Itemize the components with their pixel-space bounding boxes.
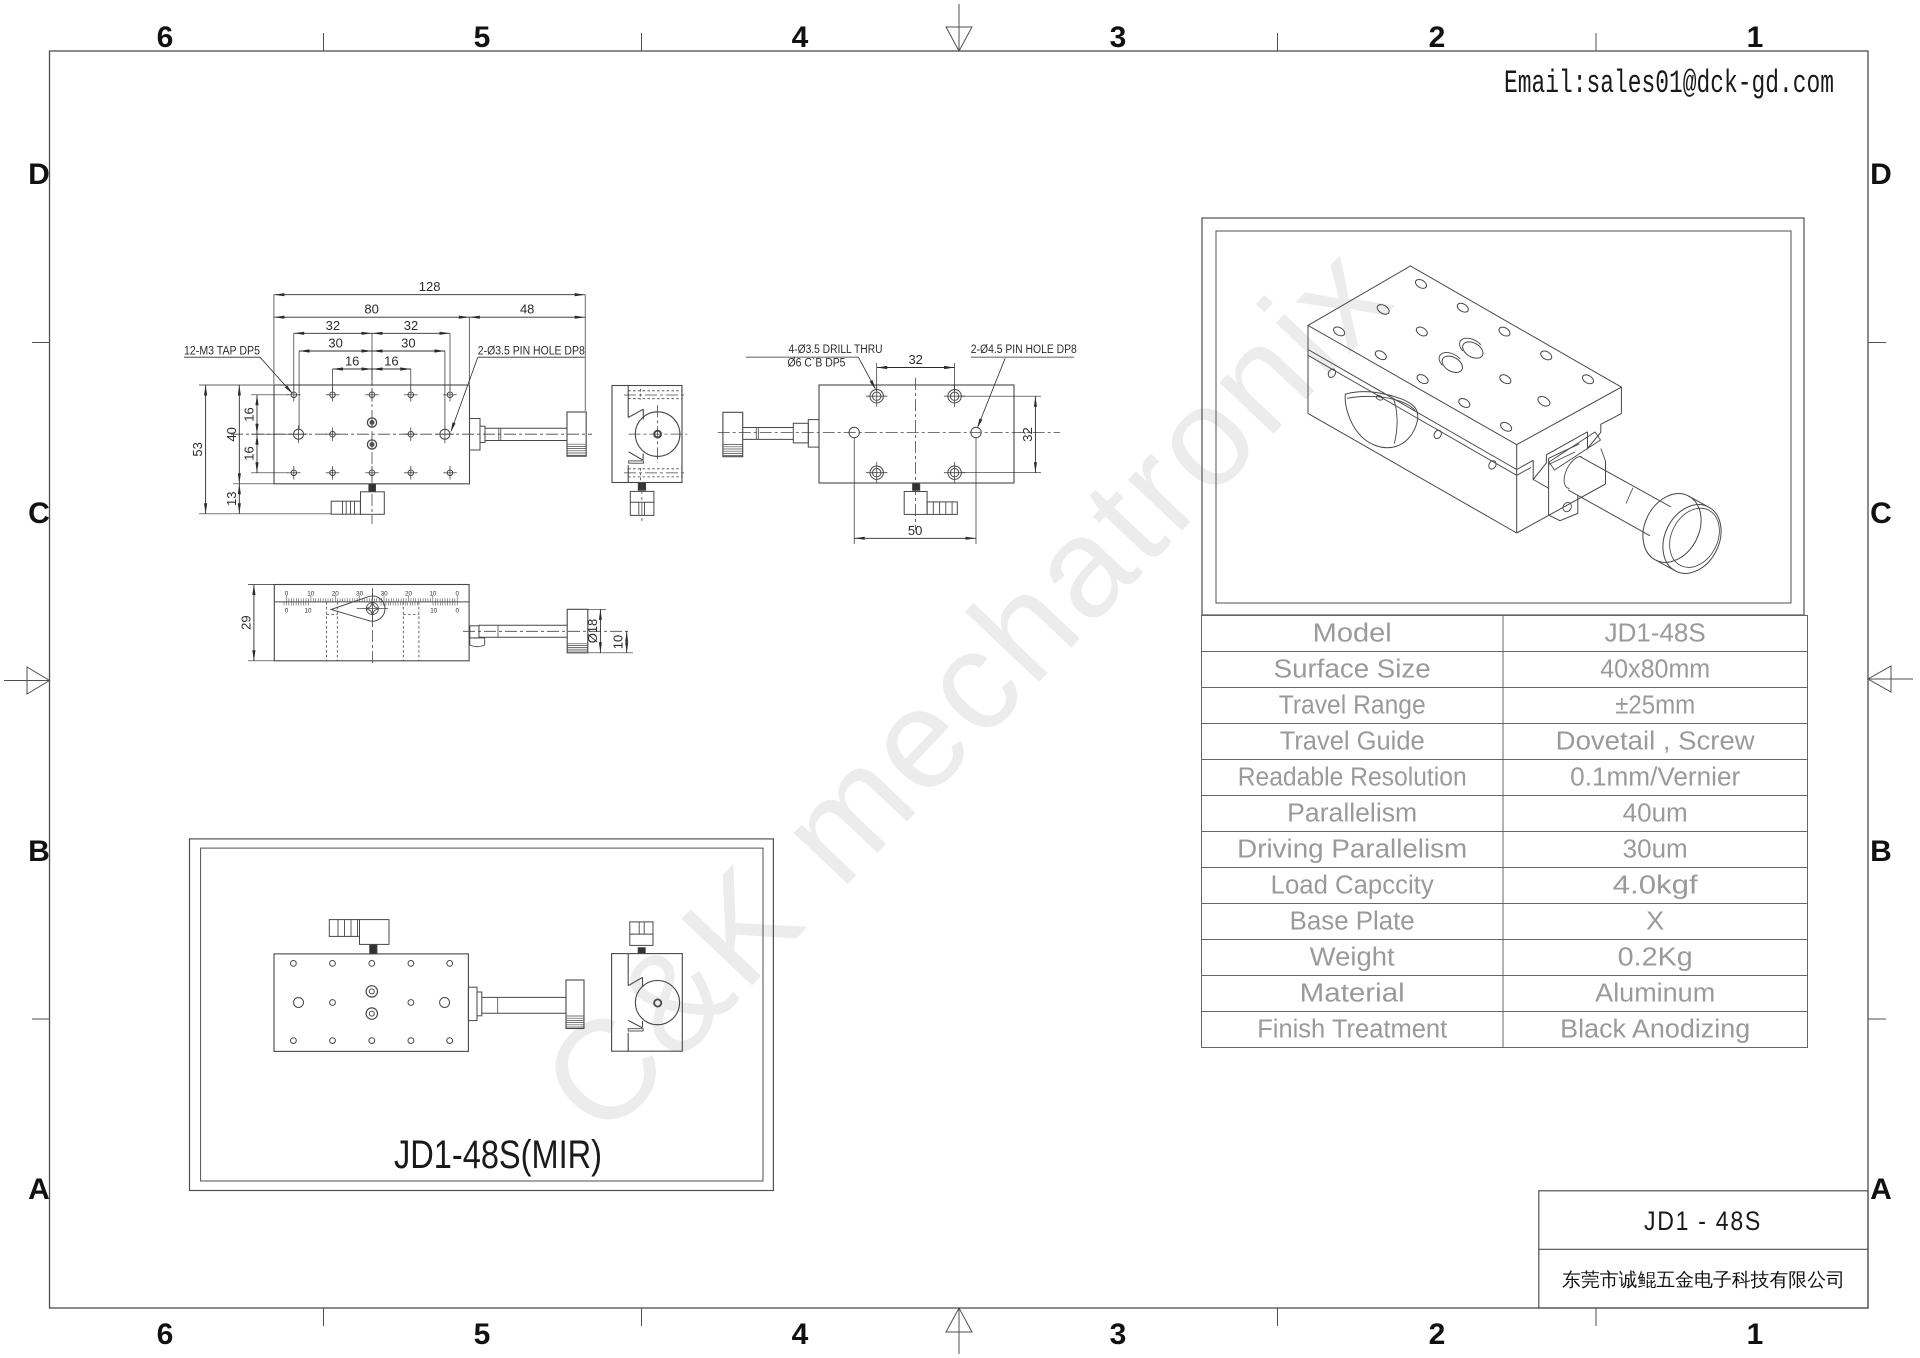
svg-text:Load Capccity: Load Capccity — [1271, 872, 1434, 900]
svg-text:29: 29 — [238, 615, 253, 629]
svg-text:12-M3 TAP DP5: 12-M3 TAP DP5 — [184, 346, 260, 358]
svg-text:3: 3 — [1110, 1318, 1127, 1351]
svg-text:50: 50 — [908, 523, 922, 538]
svg-text:4-Ø3.5 DRILL THRU: 4-Ø3.5 DRILL THRU — [789, 344, 883, 356]
svg-text:20: 20 — [405, 591, 413, 598]
svg-text:0.2Kg: 0.2Kg — [1618, 944, 1693, 972]
svg-text:0.1mm/Vernier: 0.1mm/Vernier — [1570, 764, 1741, 792]
svg-text:B: B — [28, 835, 50, 868]
svg-text:13: 13 — [224, 492, 239, 506]
svg-text:Ø6 C`B DP5: Ø6 C`B DP5 — [788, 358, 846, 370]
svg-text:2: 2 — [1429, 1318, 1446, 1351]
svg-text:32: 32 — [326, 318, 340, 333]
svg-text:32: 32 — [404, 318, 418, 333]
svg-text:4.0kgf: 4.0kgf — [1613, 872, 1699, 900]
svg-text:X: X — [1646, 908, 1664, 936]
svg-text:Base Plate: Base Plate — [1290, 908, 1415, 936]
svg-text:32: 32 — [1020, 427, 1035, 441]
svg-text:Travel Range: Travel Range — [1279, 692, 1426, 720]
svg-text:6: 6 — [157, 1318, 174, 1351]
svg-text:JD1-48S: JD1-48S — [1605, 620, 1706, 648]
svg-text:A: A — [28, 1173, 50, 1206]
svg-text:C: C — [28, 497, 50, 530]
svg-text:10: 10 — [611, 635, 626, 649]
svg-text:10: 10 — [307, 591, 315, 598]
svg-text:16: 16 — [345, 354, 359, 369]
svg-text:4: 4 — [792, 1318, 809, 1351]
svg-text:32: 32 — [908, 352, 922, 367]
svg-text:40um: 40um — [1623, 800, 1688, 828]
svg-text:Email:sales01@dck-gd.com: Email:sales01@dck-gd.com — [1504, 65, 1834, 102]
svg-text:53: 53 — [190, 442, 205, 456]
svg-text:16: 16 — [384, 354, 398, 369]
svg-text:Finish Treatment: Finish Treatment — [1257, 1016, 1447, 1044]
svg-text:1: 1 — [1747, 1318, 1764, 1351]
svg-text:0: 0 — [455, 591, 459, 598]
svg-text:Driving Parallelism: Driving Parallelism — [1237, 836, 1467, 864]
svg-text:2: 2 — [1429, 21, 1446, 54]
svg-text:D: D — [28, 158, 50, 191]
svg-text:2-Ø4.5 PIN HOLE DP8: 2-Ø4.5 PIN HOLE DP8 — [971, 344, 1077, 356]
svg-text:Dovetail , Screw: Dovetail , Screw — [1556, 728, 1756, 756]
svg-text:JD1 - 48S: JD1 - 48S — [1644, 1206, 1762, 1236]
svg-text:Model: Model — [1313, 620, 1392, 648]
svg-text:6: 6 — [157, 21, 174, 54]
svg-text:4: 4 — [792, 21, 809, 54]
svg-text:10: 10 — [304, 608, 312, 615]
svg-text:16: 16 — [242, 446, 257, 460]
svg-text:D: D — [1870, 158, 1892, 191]
svg-text:5: 5 — [474, 21, 491, 54]
svg-text:30: 30 — [328, 336, 342, 351]
svg-text:40: 40 — [224, 427, 239, 441]
svg-text:Aluminum: Aluminum — [1595, 980, 1715, 1008]
svg-text:30: 30 — [356, 591, 364, 598]
svg-text:Travel Guide: Travel Guide — [1280, 728, 1425, 756]
svg-text:A: A — [1870, 1173, 1892, 1206]
svg-text:128: 128 — [419, 279, 441, 294]
svg-text:Surface Size: Surface Size — [1274, 656, 1431, 684]
svg-text:0: 0 — [285, 591, 289, 598]
svg-text:30: 30 — [401, 336, 415, 351]
svg-text:10: 10 — [429, 591, 437, 598]
svg-text:40x80mm: 40x80mm — [1600, 656, 1710, 684]
svg-text:30um: 30um — [1623, 836, 1688, 864]
svg-text:Black Anodizing: Black Anodizing — [1560, 1016, 1750, 1044]
svg-text:B: B — [1870, 835, 1892, 868]
svg-text:10: 10 — [430, 608, 438, 615]
svg-text:1: 1 — [1747, 21, 1764, 54]
svg-text:0: 0 — [285, 608, 289, 615]
svg-text:Readable Resolution: Readable Resolution — [1238, 764, 1467, 792]
svg-text:80: 80 — [364, 302, 378, 317]
svg-text:±25mm: ±25mm — [1615, 692, 1695, 720]
svg-text:30: 30 — [381, 591, 389, 598]
svg-text:Parallelism: Parallelism — [1287, 800, 1417, 828]
svg-text:16: 16 — [242, 407, 257, 421]
svg-text:C: C — [1870, 497, 1892, 530]
svg-text:Ø18: Ø18 — [585, 619, 600, 644]
svg-text:Material: Material — [1300, 980, 1405, 1008]
svg-text:Weight: Weight — [1310, 944, 1395, 972]
svg-text:3: 3 — [1110, 21, 1127, 54]
svg-text:0: 0 — [455, 608, 459, 615]
svg-text:JD1-48S(MIR): JD1-48S(MIR) — [394, 1133, 602, 1177]
svg-text:5: 5 — [474, 1318, 491, 1351]
svg-text:20: 20 — [332, 591, 340, 598]
svg-text:48: 48 — [520, 302, 534, 317]
svg-text:2-Ø3.5 PIN HOLE DP8: 2-Ø3.5 PIN HOLE DP8 — [478, 346, 585, 358]
